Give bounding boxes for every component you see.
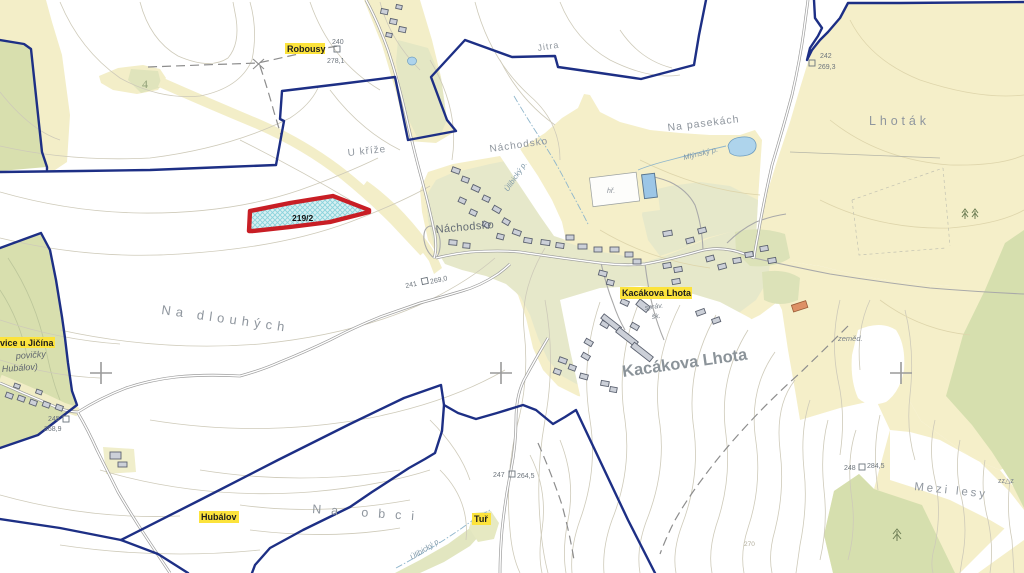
- svg-text:268,9: 268,9: [44, 426, 62, 433]
- svg-text:247: 247: [493, 472, 505, 479]
- svg-text:zz△z: zz△z: [998, 478, 1014, 485]
- svg-text:Kacákova Lhota: Kacákova Lhota: [622, 288, 692, 298]
- svg-text:269,3: 269,3: [818, 64, 836, 71]
- svg-text:264,5: 264,5: [517, 473, 535, 480]
- svg-text:219/2: 219/2: [292, 213, 314, 223]
- svg-text:hř.: hř.: [607, 188, 615, 195]
- svg-text:242: 242: [820, 53, 832, 60]
- svg-text:Robousy: Robousy: [287, 44, 326, 54]
- svg-text:Hubálov: Hubálov: [201, 512, 237, 522]
- svg-text:278,1: 278,1: [327, 58, 345, 65]
- svg-text:šk.: šk.: [651, 313, 661, 321]
- svg-text:284,5: 284,5: [867, 463, 885, 470]
- svg-text:248: 248: [844, 465, 856, 472]
- svg-text:vice u Jičína: vice u Jičína: [0, 338, 55, 348]
- svg-text:245: 245: [48, 416, 60, 423]
- svg-text:4: 4: [142, 77, 148, 91]
- svg-text:240: 240: [332, 39, 344, 46]
- svg-text:zeměd.: zeměd.: [837, 334, 863, 343]
- svg-text:270: 270: [744, 541, 755, 548]
- svg-text:Tuř: Tuř: [474, 514, 488, 524]
